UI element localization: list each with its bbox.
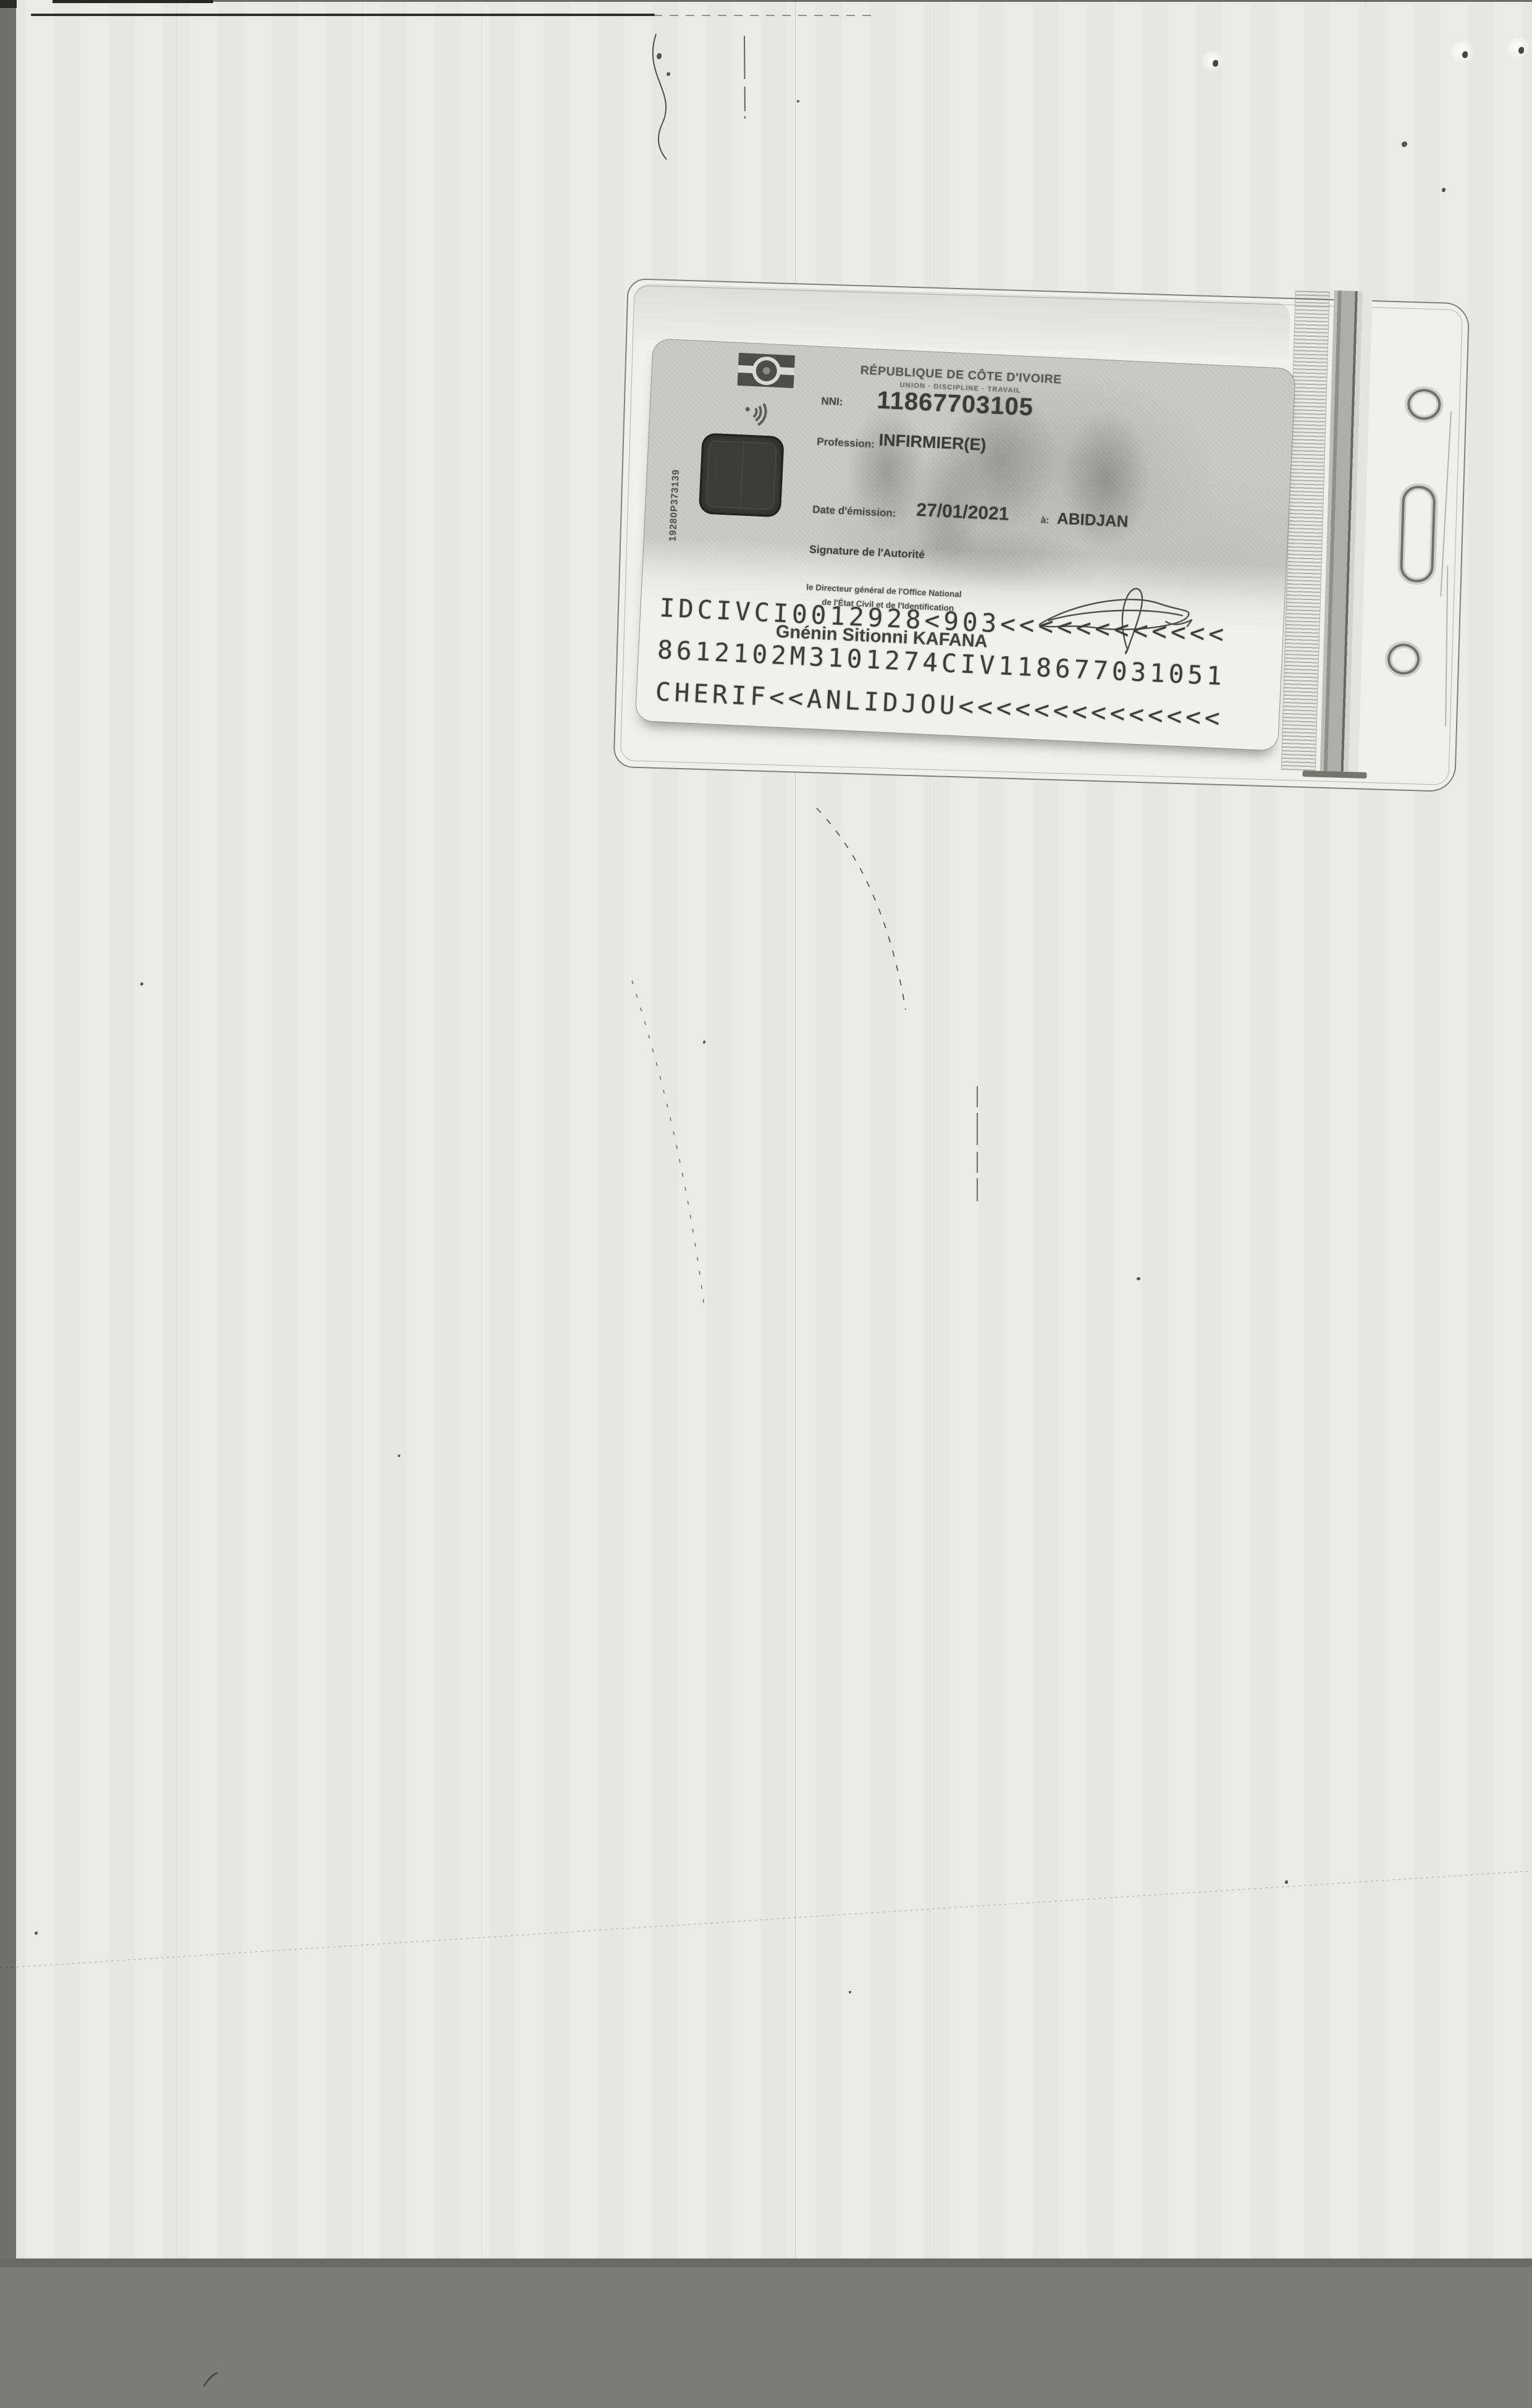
scanned-page: 19280P373139 RÉPUBLIQUE DE CÔTE D'IVOIRE… [0, 0, 1532, 2408]
scan-speck [1137, 1277, 1140, 1280]
paper-dimple [1507, 37, 1532, 62]
nni-label: NNI: [821, 395, 843, 408]
scan-speck [1402, 142, 1407, 147]
punch-slot-middle [1400, 485, 1436, 583]
id-card-back: 19280P373139 RÉPUBLIQUE DE CÔTE D'IVOIRE… [635, 338, 1296, 751]
issue-date-value: 27/01/2021 [916, 500, 1010, 525]
scan-speck [1442, 188, 1446, 192]
smart-chip-icon [699, 433, 785, 517]
contactless-icon [742, 390, 783, 428]
scan-speck [657, 53, 662, 59]
card-serial-vertical: 19280P373139 [668, 424, 684, 542]
scan-speck [703, 1041, 705, 1044]
flag-logo-icon [738, 353, 795, 388]
paper-fold-line [176, 0, 177, 2258]
scan-left-edge-shadow [0, 0, 16, 2408]
scan-speck [797, 100, 799, 103]
profession-label: Profession: [817, 436, 875, 450]
scanner-bed-band [0, 2258, 1532, 2408]
scan-speck [35, 1932, 38, 1935]
scan-speck [140, 982, 143, 986]
scan-speck [398, 1455, 400, 1457]
scan-streak-line [31, 14, 655, 16]
flag-logo-disc [755, 360, 777, 382]
scan-speck [849, 1991, 851, 1993]
scan-top-edge-dark [53, 0, 213, 3]
paper-fold-line [481, 0, 482, 2258]
scan-speck [1285, 1880, 1288, 1884]
scan-streak-line-faint [654, 15, 873, 16]
issue-place-label: à: [1040, 515, 1049, 526]
paper-fold-line [362, 0, 363, 2258]
issue-place-value: ABIDJAN [1056, 509, 1129, 531]
scan-top-edge [53, 0, 1532, 2]
paper-dimple [1202, 51, 1226, 74]
card-holder-pouch: 19280P373139 RÉPUBLIQUE DE CÔTE D'IVOIRE… [610, 276, 1472, 795]
paper-dimple [1450, 41, 1476, 67]
scan-speck [667, 72, 670, 76]
scan-corner-mark [0, 0, 17, 8]
